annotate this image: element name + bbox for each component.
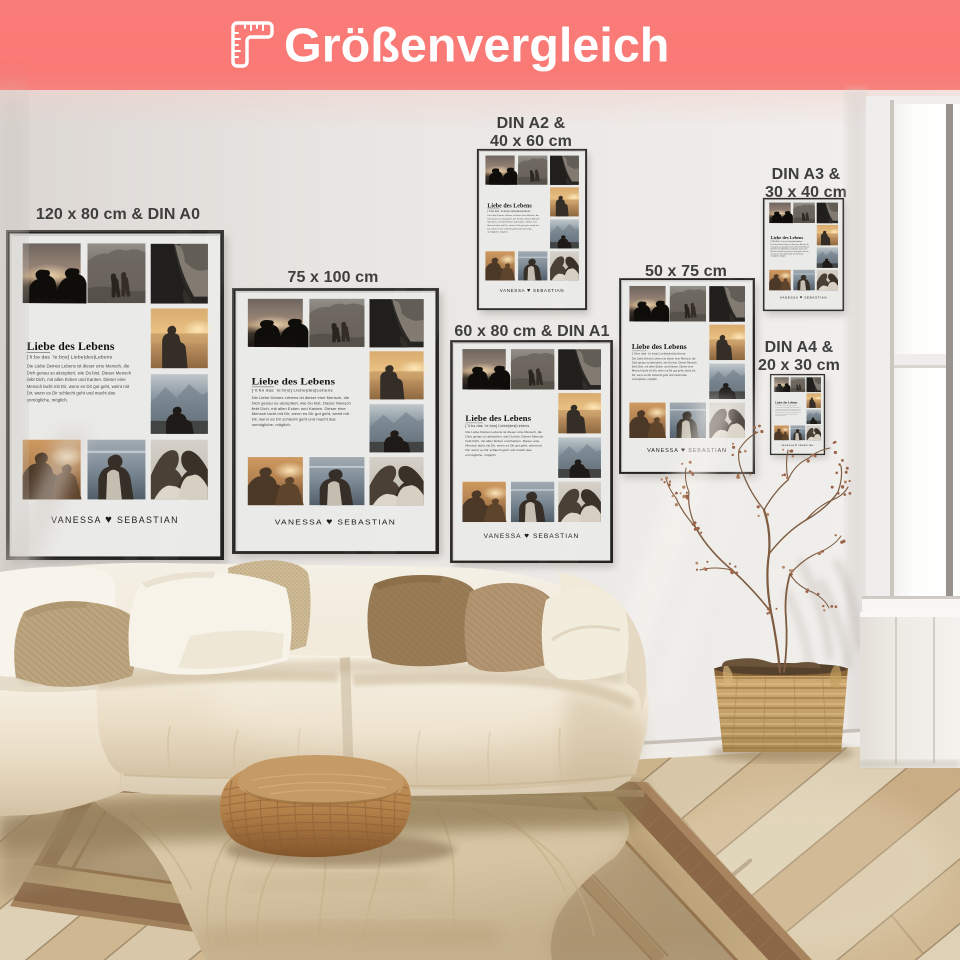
svg-text:DIN A2 &: DIN A2 & [497, 115, 566, 132]
svg-text:40 x 60 cm: 40 x 60 cm [490, 133, 572, 150]
svg-text:120 x 80 cm & DIN A0: 120 x 80 cm & DIN A0 [36, 206, 200, 223]
svg-text:60 x 80 cm & DIN A1: 60 x 80 cm & DIN A1 [454, 323, 609, 340]
svg-text:20 x 30 cm: 20 x 30 cm [758, 357, 840, 374]
svg-text:DIN A4 &: DIN A4 & [765, 339, 834, 356]
svg-text:DIN A3 &: DIN A3 & [772, 166, 841, 183]
svg-text:75 x 100 cm: 75 x 100 cm [288, 269, 379, 286]
svg-text:50 x 75 cm: 50 x 75 cm [645, 263, 727, 280]
svg-text:Größenvergleich: Größenvergleich [284, 19, 669, 73]
